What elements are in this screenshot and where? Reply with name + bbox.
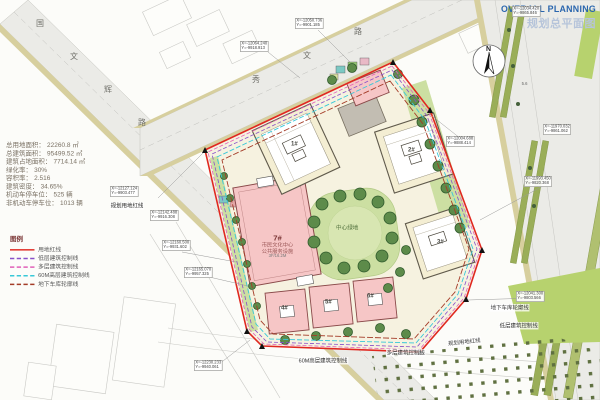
coord-label: X=-11970.032Y=-9861.062 [543,124,571,135]
coord-label: X=-12165.070Y=-9957.325 [184,267,212,278]
legend-header: 图例 [10,234,132,243]
building-4-label: 4# [281,304,288,311]
road-name-char: 文 [303,50,311,61]
coord-label: X=-11993.450Y=-9820.368 [524,176,552,187]
annotation-garage-outline: 地下车库轮廓线 [490,304,529,311]
coord-label: X=-12034.420Y=-9865.846 [512,6,540,17]
road-name-char: 国 [36,18,44,29]
north-label: N [486,46,491,53]
stats-panel: 总用地面积：22260.8 ㎡ 总建筑面积：95499.52 ㎡ 建筑占地面积：… [6,141,150,207]
building-3-label: 3# [437,238,444,245]
central-green-label: 中心绿地 [336,224,358,232]
coord-label: X=-12050.736Y=-9901.185 [295,18,323,29]
stat-row: 容积率：2.516 [6,174,150,182]
building-7-label: 7# 市民文化中心 公共服务设施 3F/16.2M [246,234,309,259]
building-5-label: 5# [325,298,332,305]
annotation-lowrise-control: 低层建筑控制线 [499,322,538,329]
legend-item: 用地红线 [10,246,132,255]
coord-label: X=-12160.500Y=-9931.602 [162,240,190,251]
legend-line-swatch [10,275,34,276]
coord-label: X=-12064.240Y=-9918.913 [240,41,268,52]
road-name-char: 秀 [252,74,260,85]
page-subtitle: 规划总平面图 [527,15,596,31]
coord-label: X=-12041.300Y=-9803.566 [516,291,544,302]
building-6-label: 6# [367,292,374,299]
legend-line-swatch [10,258,34,259]
road-name-char: 辉 [104,84,112,95]
legend-item: 多层建筑控制线 [10,263,132,272]
building-2-label: 2# [408,146,415,153]
annotation-multi-control: 多层建筑控制线 [386,349,425,356]
stat-row: 总建筑面积：95499.52 ㎡ [6,149,150,157]
stat-row: 总用地面积：22260.8 ㎡ [6,141,150,149]
coord-label: X=-12127.124Y=-9903.477 [110,186,138,197]
road-name-char: 路 [138,117,146,128]
legend: 图例 用地红线 低层建筑控制线 多层建筑控制线 60M高层建筑控制线 地下车库轮… [10,234,132,289]
legend-line-swatch [10,249,34,250]
road-name-char: 路 [354,26,362,37]
legend-line-swatch [10,266,34,267]
coord-label: X=-12230.233Y=-9940.061 [194,360,222,371]
stat-row: 建筑占地面积：7714.14 ㎡ [6,158,150,166]
site-plan-page: OVERALL PLANNING 规划总平面图 总用地面积：22260.8 ㎡ … [0,0,600,400]
legend-item: 60M高层建筑控制线 [10,271,132,280]
stat-row: 绿化率：30% [6,166,150,174]
coord-label: X=-12004.688Y=-9888.414 [446,136,474,147]
road-name-char: 文 [70,51,78,62]
spot-height-label: 5.6 [521,82,528,86]
legend-item: 低层建筑控制线 [10,254,132,263]
legend-item: 地下车库轮廓线 [10,280,132,289]
annotation-red-line-left: 规划用地红线 [110,202,144,209]
building-1-label: 1# [291,140,298,147]
coord-label: X=-12142.488Y=-9916.308 [150,210,178,221]
annotation-highrise-control: 60M高层建筑控制线 [298,357,348,364]
legend-line-swatch [10,284,34,285]
